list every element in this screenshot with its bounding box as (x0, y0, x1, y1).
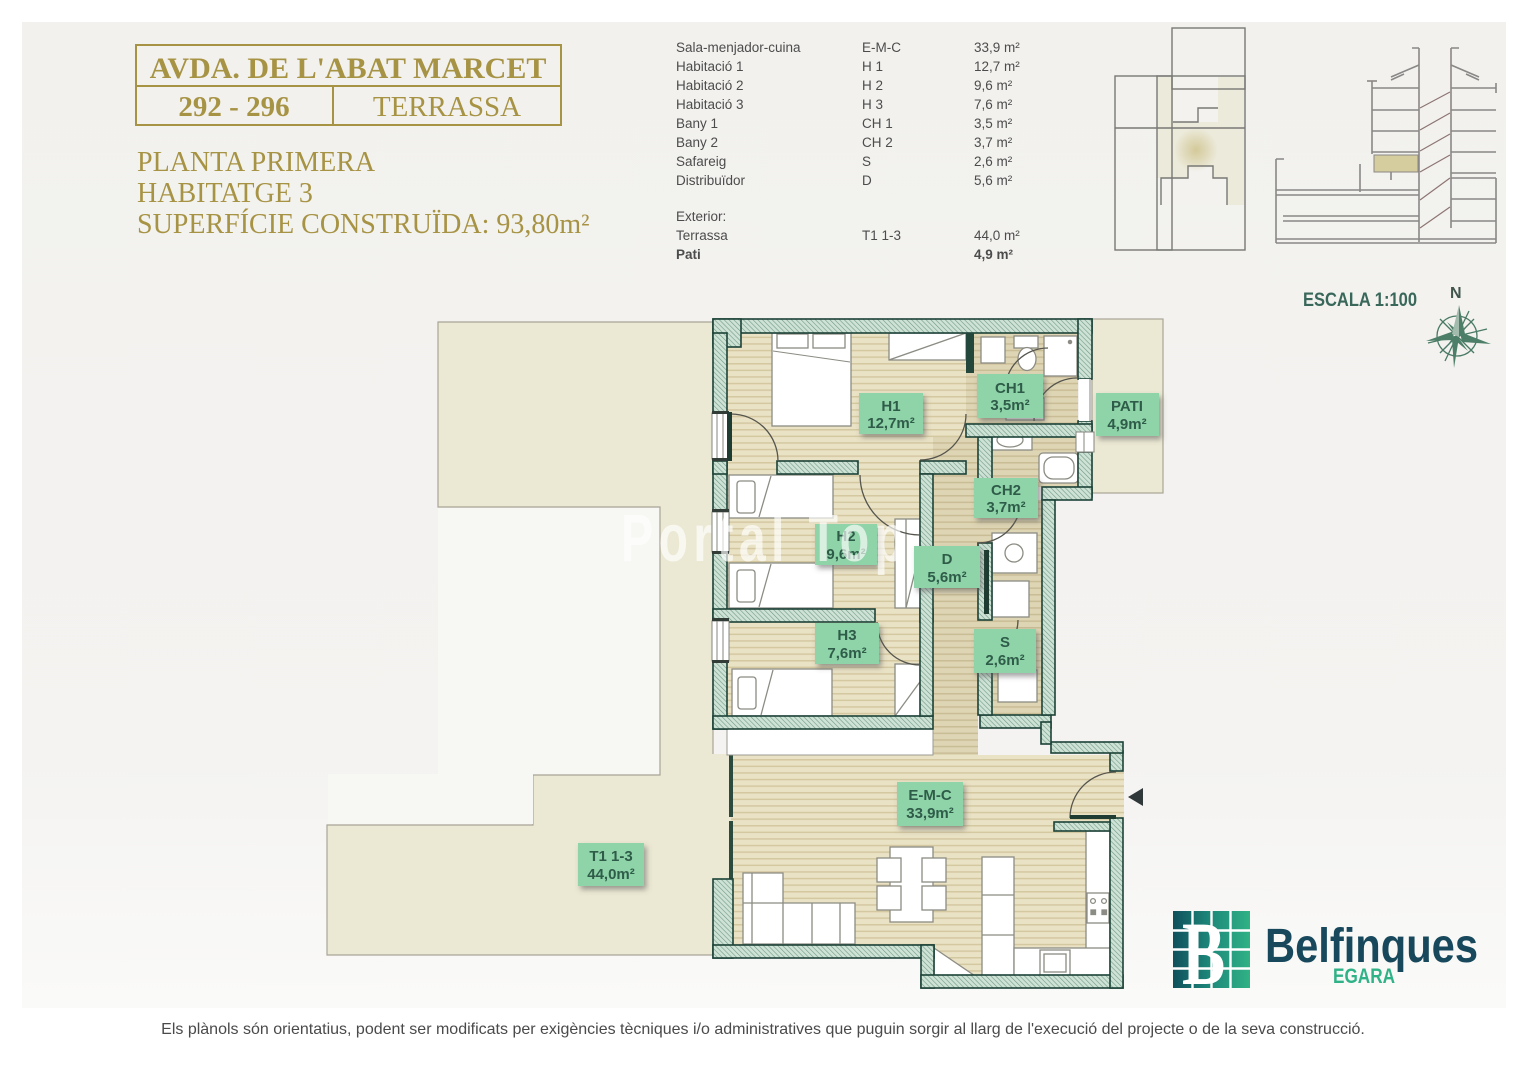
svg-text:S: S (1000, 634, 1010, 651)
svg-text:HABITATGE 3: HABITATGE 3 (137, 178, 313, 209)
svg-text:N: N (1450, 285, 1462, 302)
svg-text:Bany 2: Bany 2 (676, 135, 718, 150)
svg-text:5,6 m²: 5,6 m² (974, 173, 1013, 188)
svg-text:7,6 m²: 7,6 m² (974, 97, 1013, 112)
svg-text:Els plànols són orientatius, p: Els plànols són orientatius, podent ser … (161, 1021, 1365, 1038)
svg-text:Bany 1: Bany 1 (676, 116, 718, 131)
svg-text:Distribuïdor: Distribuïdor (676, 173, 746, 188)
svg-text:SUPERFÍCIE CONSTRUÏDA: 93,80m²: SUPERFÍCIE CONSTRUÏDA: 93,80m² (137, 209, 590, 240)
svg-text:4,9 m²: 4,9 m² (974, 247, 1014, 262)
svg-text:H 3: H 3 (862, 97, 883, 112)
svg-text:Safareig: Safareig (676, 154, 726, 169)
svg-text:Portal Top: Portal Top (621, 501, 904, 576)
svg-text:2,6m²: 2,6m² (985, 652, 1024, 669)
svg-text:Terrassa: Terrassa (676, 228, 728, 243)
svg-text:Pati: Pati (676, 247, 701, 262)
svg-text:E-M-C: E-M-C (908, 787, 951, 804)
svg-text:B: B (1182, 904, 1225, 1004)
svg-text:TERRASSA: TERRASSA (373, 91, 521, 123)
svg-text:12,7m²: 12,7m² (867, 415, 915, 432)
svg-text:Habitació 3: Habitació 3 (676, 97, 744, 112)
svg-text:PATI: PATI (1111, 398, 1143, 415)
svg-text:D: D (942, 551, 953, 568)
svg-text:T1 1-3: T1 1-3 (862, 228, 901, 243)
svg-text:3,5 m²: 3,5 m² (974, 116, 1013, 131)
svg-text:H 2: H 2 (862, 78, 883, 93)
svg-text:H 1: H 1 (862, 59, 883, 74)
svg-text:CH2: CH2 (991, 482, 1021, 499)
svg-text:33,9m²: 33,9m² (906, 805, 954, 822)
svg-text:33,9 m²: 33,9 m² (974, 40, 1020, 55)
svg-text:44,0m²: 44,0m² (587, 866, 635, 883)
svg-text:7,6m²: 7,6m² (827, 645, 866, 662)
svg-text:EGARA: EGARA (1333, 965, 1395, 988)
svg-text:2,6 m²: 2,6 m² (974, 154, 1013, 169)
svg-text:H3: H3 (837, 627, 856, 644)
svg-text:9,6 m²: 9,6 m² (974, 78, 1013, 93)
svg-text:CH 2: CH 2 (862, 135, 893, 150)
svg-text:3,7m²: 3,7m² (986, 499, 1025, 516)
svg-text:PLANTA PRIMERA: PLANTA PRIMERA (137, 147, 376, 178)
svg-text:ESCALA 1:100: ESCALA 1:100 (1303, 290, 1417, 311)
svg-text:Habitació 2: Habitació 2 (676, 78, 744, 93)
svg-text:3,7 m²: 3,7 m² (974, 135, 1013, 150)
svg-text:Exterior:: Exterior: (676, 209, 726, 224)
svg-text:E-M-C: E-M-C (862, 40, 901, 55)
svg-text:Sala-menjador-cuina: Sala-menjador-cuina (676, 40, 801, 55)
svg-text:S: S (862, 154, 871, 169)
svg-text:CH1: CH1 (995, 380, 1025, 397)
svg-text:H1: H1 (881, 398, 900, 415)
svg-text:3,5m²: 3,5m² (990, 397, 1029, 414)
svg-text:5,6m²: 5,6m² (927, 569, 966, 586)
svg-text:292 - 296: 292 - 296 (178, 91, 289, 123)
svg-text:CH 1: CH 1 (862, 116, 893, 131)
svg-text:12,7 m²: 12,7 m² (974, 59, 1020, 74)
svg-text:T1 1-3: T1 1-3 (589, 848, 632, 865)
svg-text:44,0 m²: 44,0 m² (974, 228, 1020, 243)
svg-text:D: D (862, 173, 872, 188)
svg-text:4,9m²: 4,9m² (1107, 416, 1146, 433)
svg-text:Habitació 1: Habitació 1 (676, 59, 744, 74)
svg-text:AVDA. DE L'ABAT MARCET: AVDA. DE L'ABAT MARCET (150, 52, 547, 85)
